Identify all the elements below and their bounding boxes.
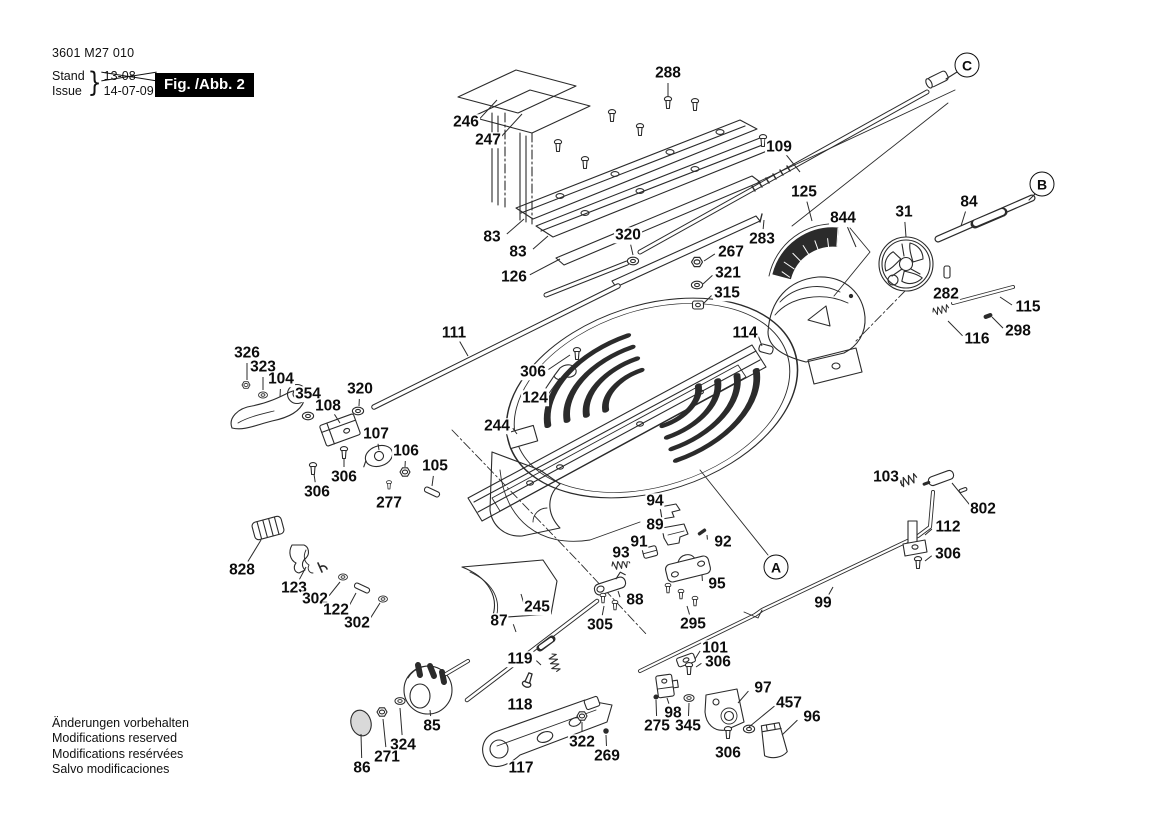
reference-bubble-B: B (1030, 172, 1055, 197)
exploded-parts-diagram-page: 3601 M27 010 Stand Issue } 13-08 14-07-0… (0, 0, 1169, 826)
part-callout-267: 267 (717, 244, 745, 260)
stand-value-struck: 13-08 (104, 69, 154, 84)
part-callout-277: 277 (375, 495, 403, 511)
part-callout-109: 109 (765, 139, 793, 155)
part-callout-306: 306 (714, 745, 742, 761)
part-callout-83: 83 (482, 229, 501, 245)
part-callout-247: 247 (474, 132, 502, 148)
part-callout-119: 119 (506, 651, 533, 667)
part-callout-84: 84 (959, 194, 978, 210)
issue-value: 14-07-09 (104, 84, 154, 99)
part-callout-103: 103 (872, 469, 900, 485)
part-callout-246: 246 (452, 114, 480, 130)
figure-label: Fig. /Abb. 2 (155, 73, 254, 97)
part-callout-802: 802 (969, 501, 997, 517)
part-callout-91: 91 (629, 534, 648, 550)
part-callout-302: 302 (343, 615, 371, 631)
part-callout-306: 306 (704, 654, 732, 670)
part-callout-315: 315 (713, 285, 741, 301)
modification-note: Modifications reserved (52, 731, 189, 746)
part-callout-288: 288 (654, 65, 682, 81)
part-callout-271: 271 (373, 749, 401, 765)
type-number: 3601 M27 010 (52, 46, 154, 60)
part-callout-106: 106 (392, 443, 420, 459)
part-callout-306: 306 (519, 364, 547, 380)
leader-lines-layer (0, 0, 1169, 826)
part-callout-107: 107 (362, 426, 390, 442)
part-callout-111: 111 (441, 325, 467, 341)
part-callout-124: 124 (521, 390, 549, 406)
part-callout-305: 305 (586, 617, 614, 633)
part-callout-105: 105 (421, 458, 449, 474)
part-callout-116: 116 (963, 331, 990, 347)
part-callout-97: 97 (753, 680, 772, 696)
part-callout-322: 322 (568, 734, 596, 750)
part-callout-87: 87 (489, 613, 508, 629)
part-callout-345: 345 (674, 718, 702, 734)
part-callout-828: 828 (228, 562, 256, 578)
part-callout-108: 108 (314, 398, 342, 414)
part-callout-298: 298 (1004, 323, 1032, 339)
part-callout-244: 244 (483, 418, 511, 434)
part-callout-89: 89 (645, 517, 664, 533)
modification-note: Salvo modificaciones (52, 762, 189, 777)
part-callout-269: 269 (593, 748, 621, 764)
part-callout-99: 99 (813, 595, 832, 611)
title-block: 3601 M27 010 Stand Issue } 13-08 14-07-0… (52, 46, 154, 99)
part-callout-86: 86 (352, 760, 371, 776)
part-callout-95: 95 (707, 576, 726, 592)
part-callout-115: 115 (1014, 299, 1041, 315)
part-callout-104: 104 (267, 371, 295, 387)
part-callout-126: 126 (500, 269, 528, 285)
part-callout-88: 88 (625, 592, 644, 608)
part-callout-114: 114 (731, 325, 758, 341)
part-callout-320: 320 (614, 227, 642, 243)
part-callout-282: 282 (932, 286, 960, 302)
reference-bubble-A: A (764, 555, 789, 580)
part-callout-295: 295 (679, 616, 707, 632)
part-callout-844: 844 (829, 210, 857, 226)
part-callout-306: 306 (303, 484, 331, 500)
modification-note: Modifications resérvées (52, 747, 189, 762)
modification-note: Änderungen vorbehalten (52, 716, 189, 731)
part-callout-320: 320 (346, 381, 374, 397)
part-callout-306: 306 (934, 546, 962, 562)
part-callout-118: 118 (506, 697, 533, 713)
reference-bubble-C: C (955, 53, 980, 78)
part-callout-83: 83 (508, 244, 527, 260)
part-callout-306: 306 (330, 469, 358, 485)
part-callout-457: 457 (775, 695, 803, 711)
part-callout-112: 112 (934, 519, 961, 535)
part-callout-283: 283 (748, 231, 776, 247)
part-callout-31: 31 (894, 204, 913, 220)
part-callout-245: 245 (523, 599, 551, 615)
part-callout-96: 96 (802, 709, 821, 725)
brace-glyph: } (88, 68, 102, 99)
part-callout-125: 125 (790, 184, 818, 200)
modification-notes: Änderungen vorbehaltenModifications rese… (52, 716, 189, 777)
part-callout-93: 93 (611, 545, 630, 561)
part-callout-94: 94 (645, 493, 664, 509)
part-callout-275: 275 (643, 718, 671, 734)
part-callout-321: 321 (714, 265, 742, 281)
part-callout-117: 117 (507, 760, 534, 776)
part-callout-85: 85 (422, 718, 441, 734)
stand-label: Stand (52, 69, 85, 84)
issue-label: Issue (52, 84, 85, 99)
part-callout-92: 92 (713, 534, 732, 550)
